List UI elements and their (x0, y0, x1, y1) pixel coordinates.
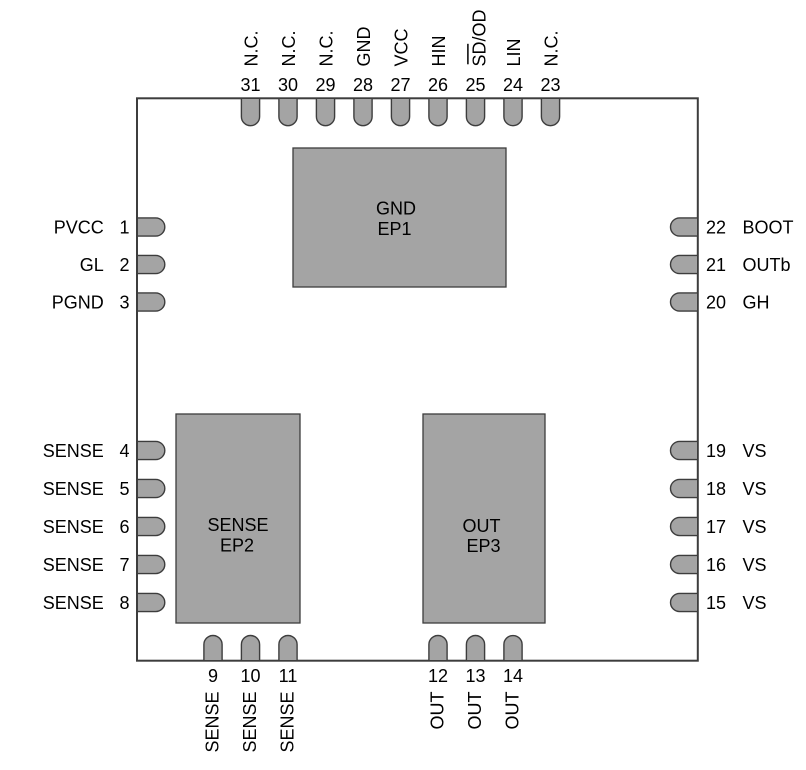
svg-text:22: 22 (706, 218, 726, 238)
svg-text:23: 23 (540, 75, 560, 95)
svg-text:6: 6 (119, 517, 129, 537)
svg-text:HIN: HIN (429, 36, 449, 67)
svg-text:21: 21 (706, 255, 726, 275)
svg-text:GL: GL (80, 255, 104, 275)
svg-text:18: 18 (706, 479, 726, 499)
svg-text:OUTEP3: OUTEP3 (463, 516, 501, 556)
svg-text:VS: VS (743, 517, 767, 537)
svg-text:PVCC: PVCC (54, 218, 104, 238)
svg-text:28: 28 (353, 75, 373, 95)
svg-text:PGND: PGND (52, 293, 104, 313)
svg-text:OUT: OUT (428, 692, 448, 730)
svg-text:VS: VS (743, 441, 767, 461)
svg-text:10: 10 (240, 666, 260, 686)
svg-text:5: 5 (119, 479, 129, 499)
svg-text:VCC: VCC (392, 28, 412, 66)
svg-text:SENSE: SENSE (43, 593, 104, 613)
svg-text:13: 13 (465, 666, 485, 686)
svg-text:9: 9 (208, 666, 218, 686)
svg-text:20: 20 (706, 293, 726, 313)
svg-text:OUTb: OUTb (743, 255, 791, 275)
svg-text:25: 25 (465, 75, 485, 95)
svg-text:SD/OD: SD/OD (470, 9, 490, 66)
svg-text:17: 17 (706, 517, 726, 537)
svg-text:SENSE: SENSE (278, 692, 298, 753)
svg-text:VS: VS (743, 479, 767, 499)
svg-text:7: 7 (119, 555, 129, 575)
svg-text:SENSE: SENSE (43, 555, 104, 575)
svg-text:SENSE: SENSE (43, 479, 104, 499)
svg-text:N.C.: N.C. (279, 31, 299, 67)
svg-text:24: 24 (503, 75, 523, 95)
svg-text:15: 15 (706, 593, 726, 613)
svg-text:VS: VS (743, 555, 767, 575)
svg-text:26: 26 (428, 75, 448, 95)
svg-text:27: 27 (390, 75, 410, 95)
svg-text:OUT: OUT (503, 692, 523, 730)
svg-text:29: 29 (315, 75, 335, 95)
svg-text:11: 11 (279, 666, 298, 686)
svg-text:GND: GND (354, 27, 374, 67)
svg-text:3: 3 (119, 293, 129, 313)
svg-text:30: 30 (278, 75, 298, 95)
svg-text:4: 4 (119, 441, 129, 461)
svg-text:OUT: OUT (465, 692, 485, 730)
svg-text:12: 12 (428, 666, 448, 686)
svg-text:BOOT: BOOT (743, 218, 794, 238)
svg-text:GNDEP1: GNDEP1 (376, 198, 416, 239)
svg-text:SENSE: SENSE (43, 441, 104, 461)
svg-text:GH: GH (743, 293, 770, 313)
svg-text:N.C.: N.C. (542, 31, 562, 67)
svg-text:SENSE: SENSE (203, 692, 223, 753)
svg-text:SENSE: SENSE (240, 692, 260, 753)
svg-text:2: 2 (119, 255, 129, 275)
svg-text:1: 1 (119, 218, 129, 238)
svg-text:8: 8 (119, 593, 129, 613)
svg-text:16: 16 (706, 555, 726, 575)
svg-text:19: 19 (706, 441, 726, 461)
svg-text:SENSE: SENSE (43, 517, 104, 537)
svg-text:31: 31 (240, 75, 260, 95)
svg-text:N.C.: N.C. (242, 31, 262, 67)
svg-text:VS: VS (743, 593, 767, 613)
svg-text:LIN: LIN (504, 38, 524, 66)
svg-text:N.C.: N.C. (317, 31, 337, 67)
svg-text:14: 14 (503, 666, 523, 686)
